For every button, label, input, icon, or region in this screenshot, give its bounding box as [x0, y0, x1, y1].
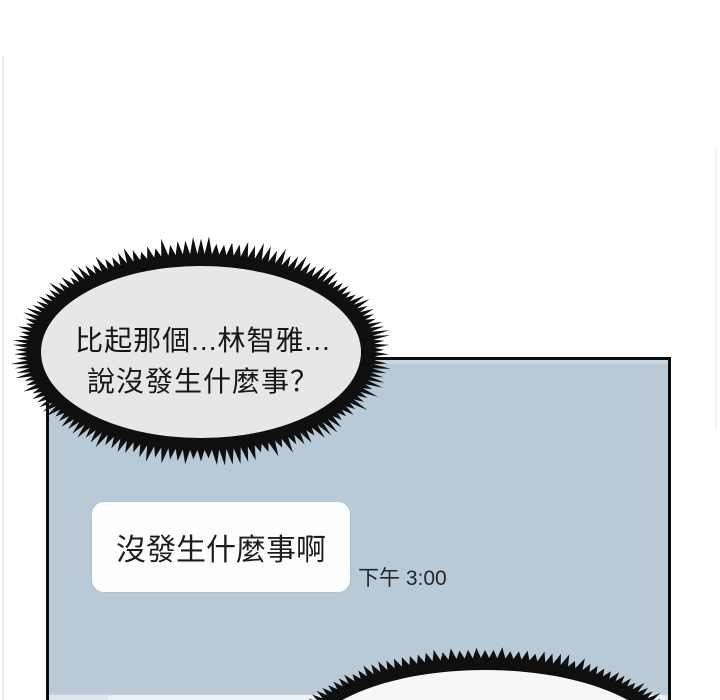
shout-bubble-line2: 說沒發生什麼事？: [8, 361, 398, 402]
page-edge-line-left: [2, 55, 4, 700]
chat-timestamp: 下午 3:00: [358, 562, 447, 592]
chat-message-text: 沒發生什麼事啊: [116, 525, 326, 569]
bottom-shout-bubble: [265, 640, 705, 700]
comic-page: 沒發生什麼事啊 下午 3:00 比起那個...林智雅... 說沒發生什麼事？: [0, 0, 720, 700]
chat-message-bubble: 沒發生什麼事啊: [92, 502, 350, 592]
page-edge-line-right: [715, 150, 717, 430]
shout-bubble-line1: 比起那個...林智雅...: [8, 320, 398, 361]
shout-bubble-text: 比起那個...林智雅... 說沒發生什麼事？: [8, 320, 398, 402]
